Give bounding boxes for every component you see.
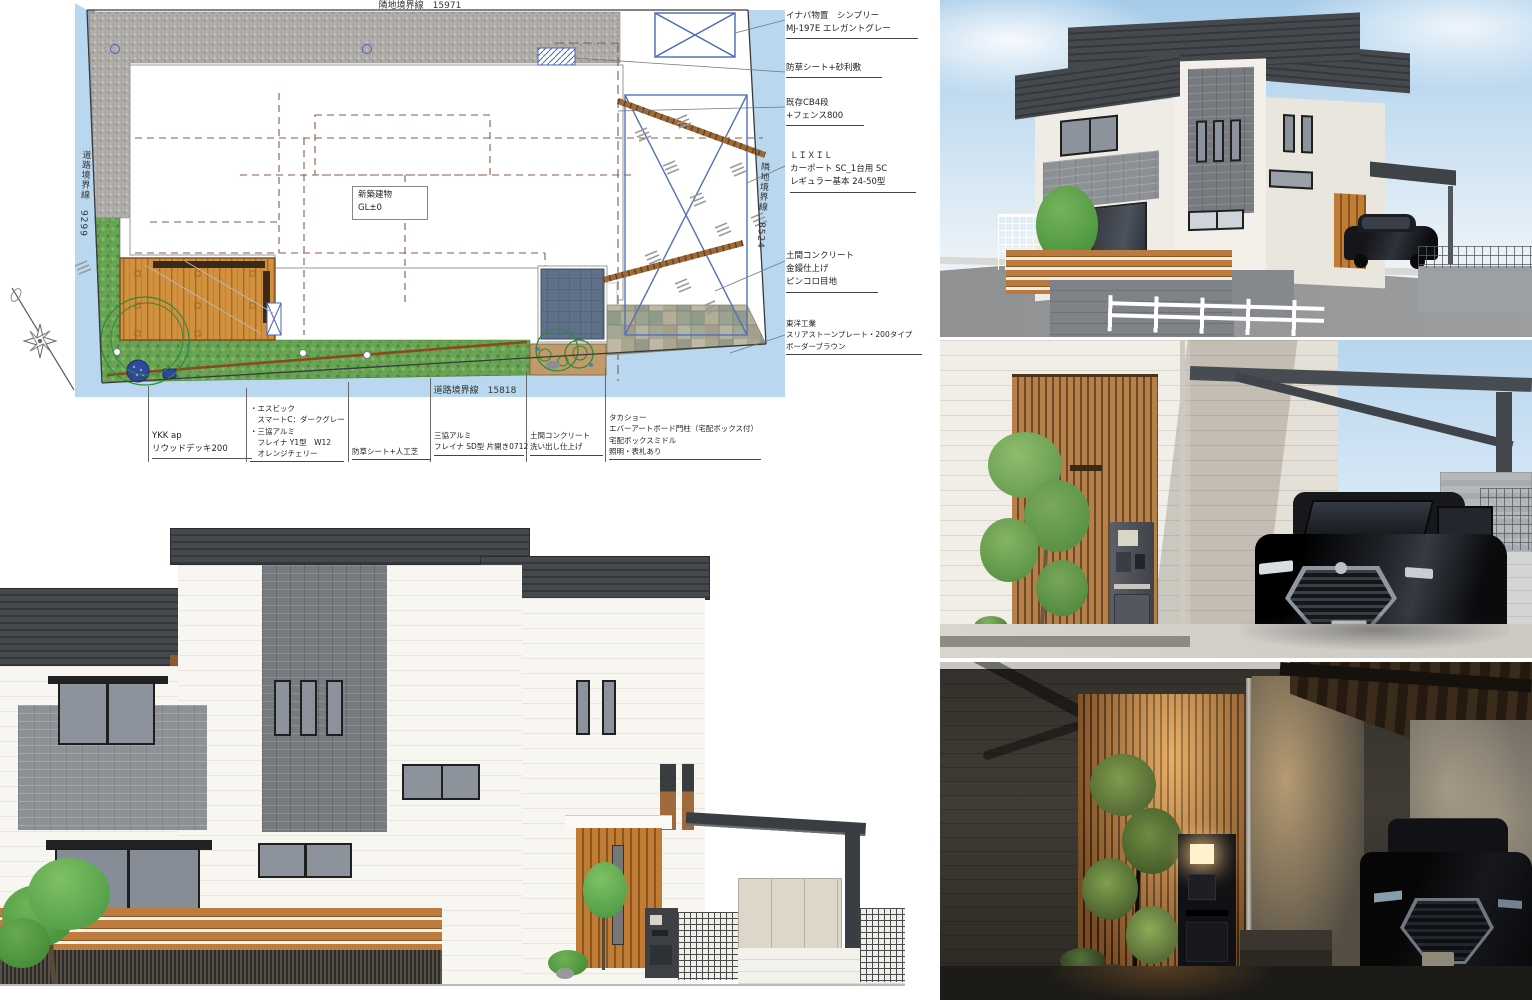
annotation-inaba-shed: イナバ物置 シンプリー MJ-197E エレガントグレー xyxy=(786,10,918,39)
slit-window xyxy=(602,680,616,735)
annotation-lixil-carport: ＬＩＸＩＬ カーポート SC_1台用 SC レギュラー基本 24-50型 xyxy=(790,150,916,193)
boundary-label-bottom: 道路境界線 15818 xyxy=(390,385,560,399)
annotation-sankyo-gate: 三協アルミ フレイナ SD型 片開き0712 xyxy=(434,430,524,456)
annotation-artificial-turf: 防草シート+人工芝 xyxy=(352,446,430,460)
render-house-day xyxy=(940,0,1532,337)
annotation-line: YKK ap xyxy=(152,430,252,443)
annotation-line: ・エスビック xyxy=(250,403,344,414)
leader-line xyxy=(348,382,349,462)
card-slot xyxy=(1135,554,1145,569)
slit-window xyxy=(326,680,343,736)
render-entrance-night xyxy=(940,662,1532,1000)
tree-foliage xyxy=(1122,808,1182,874)
annotation-line: 東洋工業 xyxy=(786,318,922,329)
building-label-line2: GL±0 xyxy=(358,202,422,215)
annotation-line: 土間コンクリート xyxy=(530,430,603,441)
annotation-line: 既存CB4段 xyxy=(786,97,864,110)
ground-line xyxy=(0,984,905,986)
car-badge xyxy=(1335,562,1347,574)
entrance-canopy xyxy=(565,815,672,829)
leader-line xyxy=(148,386,149,462)
carport-outline xyxy=(625,95,747,335)
lit-side-wall xyxy=(1252,676,1364,972)
gate-post-lamp xyxy=(1190,844,1214,864)
building-label-box: 新築建物 GL±0 xyxy=(352,186,428,220)
car-headlight xyxy=(1498,899,1522,909)
annotation-line: リウッドデッキ200 xyxy=(152,443,252,456)
slit-window xyxy=(576,680,590,735)
window-center-pair xyxy=(258,843,352,878)
annotation-line: レギュラー基本 24-50型 xyxy=(790,176,916,189)
mail-slot xyxy=(1186,910,1228,916)
tree-foliage xyxy=(980,518,1038,582)
lattice-fence xyxy=(678,912,740,980)
tree-foliage xyxy=(28,858,110,930)
boundary-label-top: 隣地境界線 15971 xyxy=(330,0,510,14)
tree-foliage xyxy=(1126,906,1178,964)
intercom xyxy=(1188,874,1216,900)
shed-outline xyxy=(655,13,735,57)
wood-deck xyxy=(120,258,281,340)
tree-foliage xyxy=(1090,754,1156,816)
slit-window xyxy=(300,680,317,736)
annotation-line: 防草シート+砂利敷 xyxy=(786,62,882,75)
annotation-takasho-gatepost: タカショー エバーアートボード門柱（宅配ボックス付） 宅配ボックスミドル 照明・… xyxy=(609,412,761,460)
wood-beams xyxy=(603,101,765,280)
annotation-washout-concrete: 土間コンクリート 洗い出し仕上げ xyxy=(530,430,603,456)
compass-north-arrow xyxy=(2,283,82,395)
drain-box xyxy=(538,48,575,65)
annotation-existing-cb-fence: 既存CB4段 +フェンス800 xyxy=(786,97,864,126)
annotation-toyo-stone-plate: 東洋工業 スリアストーンプレート・200タイプ ボーダーブラウン xyxy=(786,318,922,355)
gate-post xyxy=(645,908,678,978)
site-plan-drawing xyxy=(75,3,785,397)
gate-post-sign xyxy=(1118,530,1138,546)
tree-foliage xyxy=(1036,560,1088,616)
annotation-line: 金鏝仕上げ xyxy=(786,263,878,276)
light-reflection xyxy=(1050,966,1270,1000)
annotation-line: オレンジチェリー xyxy=(250,448,344,459)
annotation-line: スリアストーンプレート・200タイプ xyxy=(786,329,922,340)
elevation-drawing xyxy=(0,500,905,1000)
roof-center xyxy=(170,528,530,565)
annotation-line: MJ-197E エレガントグレー xyxy=(786,23,918,36)
annotation-line: ボーダーブラウン xyxy=(786,341,922,352)
tree-foliage xyxy=(1082,858,1138,920)
annotation-line: ＬＩＸＩＬ xyxy=(790,150,916,163)
car-headlight xyxy=(1405,567,1433,579)
base-block-wall xyxy=(0,950,442,985)
step xyxy=(1240,930,1332,950)
annotation-line: 防草シート+人工芝 xyxy=(352,446,430,457)
guardrail xyxy=(1107,295,1324,337)
annotation-ykk-deck: YKK ap リウッドデッキ200 xyxy=(152,430,252,459)
building-label-line1: 新築建物 xyxy=(358,189,422,202)
stone xyxy=(556,968,574,979)
mailbox-door xyxy=(1186,922,1228,962)
mesh-fence xyxy=(1418,246,1532,268)
carport-roof xyxy=(686,812,866,836)
mail-slot xyxy=(1114,584,1150,589)
slit-window xyxy=(274,680,291,736)
leader-line xyxy=(430,378,431,462)
annotation-line: スマートC：ダークグレー xyxy=(250,414,344,425)
leader-line xyxy=(605,368,606,462)
license-plate xyxy=(1422,952,1454,967)
planting-bed xyxy=(530,344,606,375)
render-entrance-day xyxy=(940,340,1532,658)
annotation-line: フレイナ SD型 片開き0712 xyxy=(434,441,524,452)
tree-foliage xyxy=(583,862,627,918)
annotation-line: 土間コンクリート xyxy=(786,250,878,263)
annotation-weed-sheet-gravel: 防草シート+砂利敷 xyxy=(786,62,882,78)
mailbox-door xyxy=(1114,594,1150,626)
intercom xyxy=(1116,552,1131,572)
carport-post xyxy=(845,826,860,950)
annotation-doma-concrete: 土間コンクリート 金鏝仕上げ ピンコロ目地 xyxy=(786,250,878,293)
annotation-line: イナバ物置 シンプリー xyxy=(786,10,918,23)
site-plan xyxy=(75,3,785,397)
annotation-line: 宅配ボックスミドル xyxy=(609,435,761,446)
annotation-line: エバーアートボード門柱（宅配ボックス付） xyxy=(609,423,761,434)
annotation-line: カーポート SC_1台用 SC xyxy=(790,163,916,176)
annotation-line: +フェンス800 xyxy=(786,110,864,123)
storage-shed xyxy=(738,878,842,950)
lattice-fence xyxy=(860,908,905,982)
downspout xyxy=(1180,340,1185,658)
annotation-line: 三協アルミ xyxy=(434,430,524,441)
annotation-line: 洗い出し仕上げ xyxy=(530,441,603,452)
window-upper-left xyxy=(58,682,155,745)
annotation-line: タカショー xyxy=(609,412,761,423)
wall-base xyxy=(940,636,1190,647)
annotation-line: ピンコロ目地 xyxy=(786,276,878,289)
presentation-board: 隣地境界線 15971 道路境界線 9299 隣地境界線 8524 道路境界線 … xyxy=(0,0,1532,1000)
annotation-line: ・三協アルミ xyxy=(250,426,344,437)
annotation-line: 照明・表札あり xyxy=(609,446,761,457)
gate-post-unit xyxy=(1178,834,1236,986)
annotation-line: フレイナ Y1型 W12 xyxy=(250,437,344,448)
annotation-esbic-fence: ・エスビック スマートC：ダークグレー ・三協アルミ フレイナ Y1型 W12 … xyxy=(250,403,344,462)
side-wall xyxy=(1418,266,1532,312)
window-small-center xyxy=(402,764,480,800)
car-shadow xyxy=(1240,616,1510,650)
